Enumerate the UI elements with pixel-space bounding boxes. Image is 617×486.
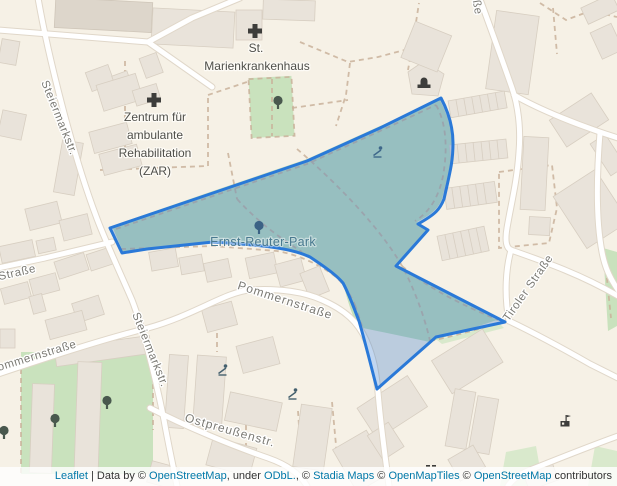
park-name-label: Ernst-Reuter-Park [210, 235, 316, 249]
attribution-text: | Data by © [88, 470, 149, 482]
odbl-link[interactable]: ODbL. [264, 470, 296, 482]
poi-label-zar-4: (ZAR) [139, 164, 171, 178]
street-label-cut-top: ße [470, 0, 484, 16]
attribution-text: © [460, 470, 474, 482]
poi-label-zar-2: ambulante [127, 128, 183, 142]
openmaptiles-link[interactable]: OpenMapTiles [388, 470, 459, 482]
map-canvas[interactable]: St. Marienkrankenhaus Zentrum für ambula… [0, 0, 617, 486]
map-viewport[interactable]: St. Marienkrankenhaus Zentrum für ambula… [0, 0, 617, 486]
poi-label-zar-3: Rehabilitation [119, 146, 192, 160]
leaflet-link[interactable]: Leaflet [55, 470, 88, 482]
poi-label-marienkrankenhaus: Marienkrankenhaus [204, 59, 309, 73]
stadia-maps-link[interactable]: Stadia Maps [313, 470, 374, 482]
poi-label-zar-1: Zentrum für [124, 110, 186, 124]
attribution-text: , © [296, 470, 313, 482]
poi-label-st: St. [249, 41, 264, 55]
attribution-text: © [374, 470, 388, 482]
attribution-text: , under [227, 470, 264, 482]
attribution-bar: Leaflet | Data by © OpenStreetMap, under… [0, 467, 617, 486]
openstreetmap-link[interactable]: OpenStreetMap [149, 470, 227, 482]
attribution-text: contributors [551, 470, 612, 482]
openstreetmap-link[interactable]: OpenStreetMap [474, 470, 552, 482]
